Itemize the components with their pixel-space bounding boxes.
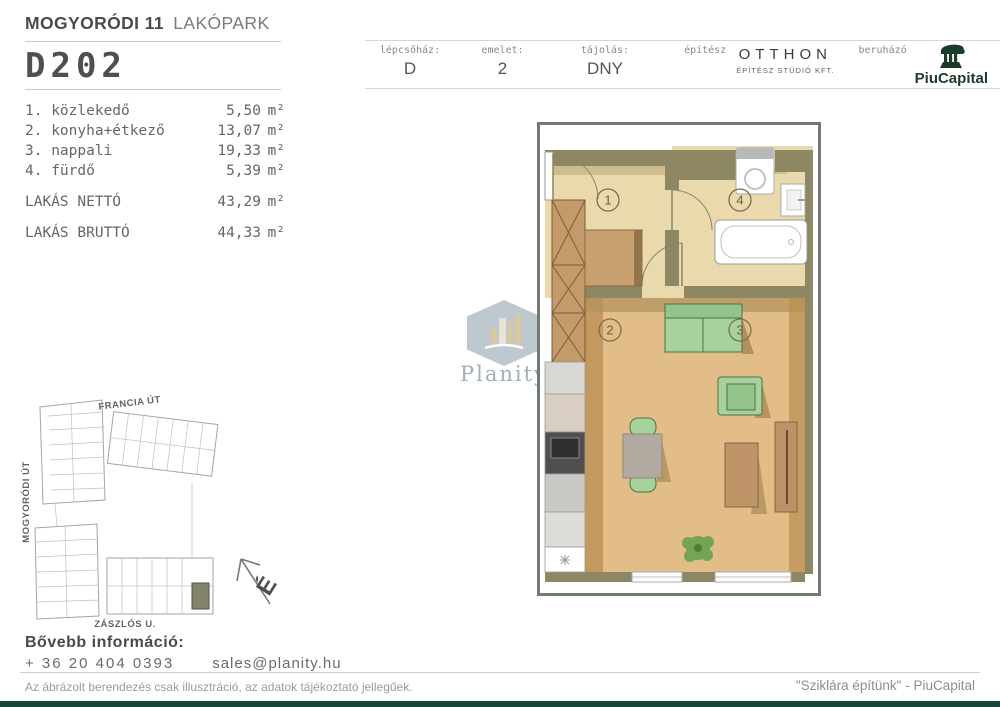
architect-label: építész xyxy=(684,45,726,75)
title-divider xyxy=(25,41,281,42)
piucapital-column-icon xyxy=(934,43,968,69)
hall-closet xyxy=(585,230,642,286)
developer-logo: PiuCapital xyxy=(915,43,988,87)
room-2-badge: 2 xyxy=(606,323,613,338)
street-label-mogyorodi: MOGYORÓDI ÚT xyxy=(20,461,32,542)
street-label-zaszlos: ZÁSZLÓS U. xyxy=(94,618,155,630)
developer-field: beruházó PiuCapital xyxy=(858,41,988,87)
footer-divider xyxy=(20,672,980,673)
footer-slogan: "Sziklára építünk" - PiuCapital xyxy=(796,678,975,693)
room-area: 5,39 xyxy=(209,161,261,181)
contact-email[interactable]: sales@planity.hu xyxy=(212,655,341,672)
bathtub xyxy=(715,220,807,264)
unit-info-bar: lépcsőház: D emelet: 2 tájolás: DNY épít… xyxy=(365,40,1000,89)
table-row: 3. nappali 19,33 m² xyxy=(25,141,285,161)
floor-label: emelet: xyxy=(481,45,523,56)
table-row: 2. konyha+étkező 13,07 m² xyxy=(25,121,285,141)
room-4-badge: 4 xyxy=(736,193,743,208)
gross-total-label: LAKÁS BRUTTÓ xyxy=(25,223,209,243)
table-row: 1. közlekedő 5,50 m² xyxy=(25,101,285,121)
architect-field: építész OTTHON ÉPÍTÉSZ STÚDIÓ KFT. xyxy=(684,41,834,75)
highlighted-unit xyxy=(192,583,209,609)
staircase-field: lépcsőház: D xyxy=(365,41,455,79)
contact-heading: Bővebb információ: xyxy=(25,634,184,652)
room-unit: m² xyxy=(261,161,285,181)
room-name: konyha+étkező xyxy=(51,123,165,139)
room-area: 13,07 xyxy=(209,121,261,141)
room-unit: m² xyxy=(261,121,285,141)
compass-north-icon: É xyxy=(228,548,298,618)
room-num: 2. xyxy=(25,123,51,139)
project-name: MOGYORÓDI 11 xyxy=(25,13,164,33)
net-total-area: 43,29 xyxy=(209,192,261,212)
gross-total-area: 44,33 xyxy=(209,223,261,243)
unit-divider xyxy=(25,89,281,90)
disclaimer-text: Az ábrázolt berendezés csak illusztráció… xyxy=(25,680,413,694)
architect-subname: ÉPÍTÉSZ STÚDIÓ KFT. xyxy=(736,66,834,75)
room-name: nappali xyxy=(51,143,112,159)
apartment-floor-plan: 1 2 3 4 xyxy=(537,122,821,596)
washing-machine xyxy=(736,148,774,194)
room-area: 19,33 xyxy=(209,141,261,161)
floor-value: 2 xyxy=(498,59,507,79)
room-area: 5,50 xyxy=(209,101,261,121)
wardrobe xyxy=(552,200,585,362)
unit-id: D202 xyxy=(25,46,127,86)
orientation-value: DNY xyxy=(587,59,623,79)
page-title: MOGYORÓDI 11 LAKÓPARK xyxy=(25,13,270,34)
orientation-field: tájolás: DNY xyxy=(550,41,660,79)
compass-label: É xyxy=(250,572,282,600)
room-name: fürdő xyxy=(51,163,95,179)
project-type: LAKÓPARK xyxy=(173,13,269,33)
floorplan-sheet: MOGYORÓDI 11 LAKÓPARK D202 lépcsőház: D … xyxy=(0,0,1000,707)
architect-name: OTTHON xyxy=(736,47,834,62)
net-total-row: LAKÁS NETTÓ 43,29 m² xyxy=(25,192,285,212)
contact-phone: + 36 20 404 0393 xyxy=(25,655,174,672)
street-label-francia: FRANCIA ÚT xyxy=(98,393,162,413)
room-1-badge: 1 xyxy=(604,193,611,208)
room-3-badge: 3 xyxy=(736,323,743,338)
sink xyxy=(781,184,805,216)
kitchen-counter xyxy=(545,362,585,572)
sideboard xyxy=(775,422,797,512)
room-num: 4. xyxy=(25,163,51,179)
gross-total-row: LAKÁS BRUTTÓ 44,33 m² xyxy=(25,223,285,243)
contact-row: + 36 20 404 0393 sales@planity.hu xyxy=(25,655,342,672)
room-unit: m² xyxy=(261,101,285,121)
table-row: 4. fürdő 5,39 m² xyxy=(25,161,285,181)
developer-label: beruházó xyxy=(858,45,906,87)
room-num: 1. xyxy=(25,103,51,119)
planity-buildings-icon xyxy=(467,300,541,366)
staircase-label: lépcsőház: xyxy=(380,45,440,56)
staircase-value: D xyxy=(404,59,416,79)
room-num: 3. xyxy=(25,143,51,159)
net-total-label: LAKÁS NETTÓ xyxy=(25,192,209,212)
floor-field: emelet: 2 xyxy=(455,41,550,79)
plant xyxy=(682,536,714,562)
room-unit: m² xyxy=(261,141,285,161)
room-area-table: 1. közlekedő 5,50 m² 2. konyha+étkező 13… xyxy=(25,101,285,243)
footer-color-bar xyxy=(0,701,1000,707)
developer-brand: PiuCapital xyxy=(915,70,988,87)
orientation-label: tájolás: xyxy=(581,45,629,56)
room-name: közlekedő xyxy=(51,103,130,119)
